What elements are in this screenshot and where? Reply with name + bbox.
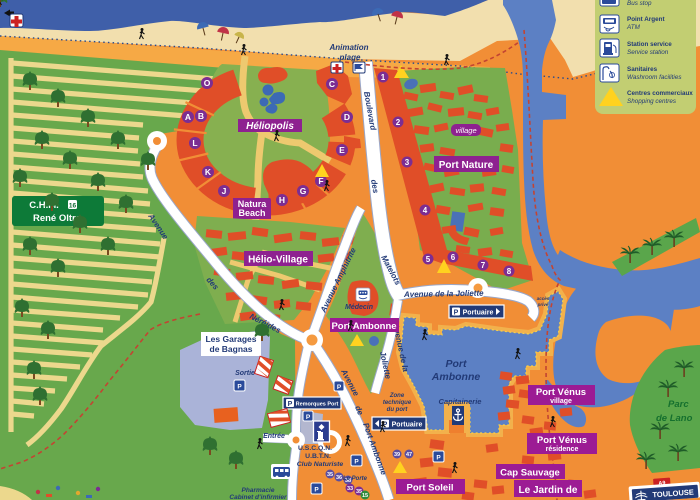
svg-text:P: P [436, 455, 441, 462]
svg-text:Port: Port [446, 358, 468, 370]
svg-text:O: O [204, 78, 211, 88]
svg-text:A: A [185, 112, 191, 122]
svg-text:Port Ambonne: Port Ambonne [331, 321, 396, 332]
svg-text:Cap Sauvage: Cap Sauvage [500, 468, 560, 479]
svg-text:plage: plage [339, 53, 361, 62]
svg-text:village: village [550, 398, 572, 405]
svg-text:Le Porte: Le Porte [343, 476, 368, 482]
svg-text:Médecin: Médecin [345, 304, 373, 311]
svg-text:Parc: Parc [668, 399, 689, 410]
svg-text:Sanitaires: Sanitaires [627, 66, 658, 73]
svg-text:J: J [222, 186, 227, 196]
svg-text:Cabinet d'infirmier: Cabinet d'infirmier [229, 494, 287, 500]
svg-text:16: 16 [69, 203, 77, 210]
svg-text:33: 33 [347, 486, 353, 492]
svg-text:H: H [279, 195, 285, 205]
svg-text:Les Garages: Les Garages [205, 334, 256, 344]
svg-text:15: 15 [362, 493, 368, 499]
svg-text:Port Vénus: Port Vénus [536, 387, 586, 398]
svg-text:35: 35 [327, 472, 333, 478]
svg-text:Portuaire: Portuaire [392, 422, 423, 429]
svg-text:8: 8 [507, 267, 512, 276]
svg-text:Entrée: Entrée [263, 433, 285, 440]
svg-text:Washroom facilities: Washroom facilities [627, 74, 682, 81]
svg-text:Hélio-Village: Hélio-Village [248, 255, 308, 266]
svg-text:Station service: Station service [627, 41, 672, 48]
svg-text:Pharmacie: Pharmacie [242, 487, 275, 494]
svg-text:Sortie: Sortie [235, 370, 255, 377]
svg-text:E: E [339, 145, 345, 155]
svg-text:Port Vénus: Port Vénus [537, 435, 587, 446]
svg-text:village: village [455, 126, 476, 135]
svg-text:Centres commerciaux: Centres commerciaux [627, 90, 693, 97]
svg-text:D: D [344, 112, 350, 122]
svg-text:Port Nature: Port Nature [439, 160, 494, 171]
svg-text:Capitainerie: Capitainerie [439, 397, 482, 406]
svg-text:Point Argent: Point Argent [627, 16, 665, 23]
svg-text:P: P [288, 401, 293, 408]
svg-text:P: P [314, 487, 319, 494]
svg-text:technique: technique [383, 400, 412, 406]
svg-text:G: G [300, 186, 307, 196]
svg-text:47: 47 [406, 452, 412, 458]
svg-text:accès: accès [537, 296, 550, 301]
svg-text:Remorques Port: Remorques Port [296, 402, 339, 408]
svg-text:ATM: ATM [626, 24, 641, 31]
svg-text:P: P [354, 459, 359, 466]
svg-text:privé: privé [537, 302, 549, 307]
svg-text:Zone: Zone [389, 393, 405, 399]
svg-text:1: 1 [381, 73, 386, 82]
svg-text:Club Naturiste: Club Naturiste [297, 461, 344, 468]
svg-text:P: P [454, 310, 459, 317]
svg-text:P: P [306, 414, 311, 421]
svg-text:Avenue de la Joliette: Avenue de la Joliette [403, 289, 484, 299]
svg-text:Animation: Animation [328, 43, 368, 52]
svg-text:Bus stop: Bus stop [627, 0, 652, 7]
svg-text:Portuaire: Portuaire [463, 310, 494, 317]
svg-text:Port Soleil: Port Soleil [407, 483, 454, 494]
svg-text:résidence: résidence [546, 446, 579, 453]
svg-text:U.B.T.N.: U.B.T.N. [305, 453, 331, 460]
svg-text:du port: du port [387, 407, 409, 413]
svg-text:de Lano: de Lano [656, 413, 693, 424]
svg-text:U.S.C.Q.N.: U.S.C.Q.N. [298, 445, 332, 452]
svg-text:K: K [205, 167, 212, 177]
svg-text:5: 5 [426, 255, 431, 264]
svg-text:P: P [337, 384, 342, 391]
svg-text:2: 2 [396, 118, 401, 127]
svg-text:Ambonne: Ambonne [431, 371, 481, 383]
svg-text:6: 6 [451, 253, 456, 262]
svg-text:Beach: Beach [238, 208, 265, 218]
svg-text:3: 3 [405, 158, 410, 167]
svg-text:B: B [198, 111, 204, 121]
svg-text:F: F [318, 176, 323, 186]
svg-text:4: 4 [423, 206, 428, 215]
svg-text:Shopping centres: Shopping centres [627, 98, 677, 105]
svg-text:Héliopolis: Héliopolis [246, 121, 294, 132]
svg-text:de Bagnas: de Bagnas [210, 344, 253, 354]
svg-text:39: 39 [394, 452, 400, 458]
svg-text:7: 7 [481, 261, 486, 270]
svg-text:C: C [329, 79, 335, 89]
svg-text:L: L [192, 138, 197, 148]
svg-text:36: 36 [336, 475, 342, 481]
svg-text:Service station: Service station [627, 49, 669, 56]
svg-text:Le Jardin de: Le Jardin de [519, 485, 578, 496]
svg-text:P: P [237, 384, 242, 391]
